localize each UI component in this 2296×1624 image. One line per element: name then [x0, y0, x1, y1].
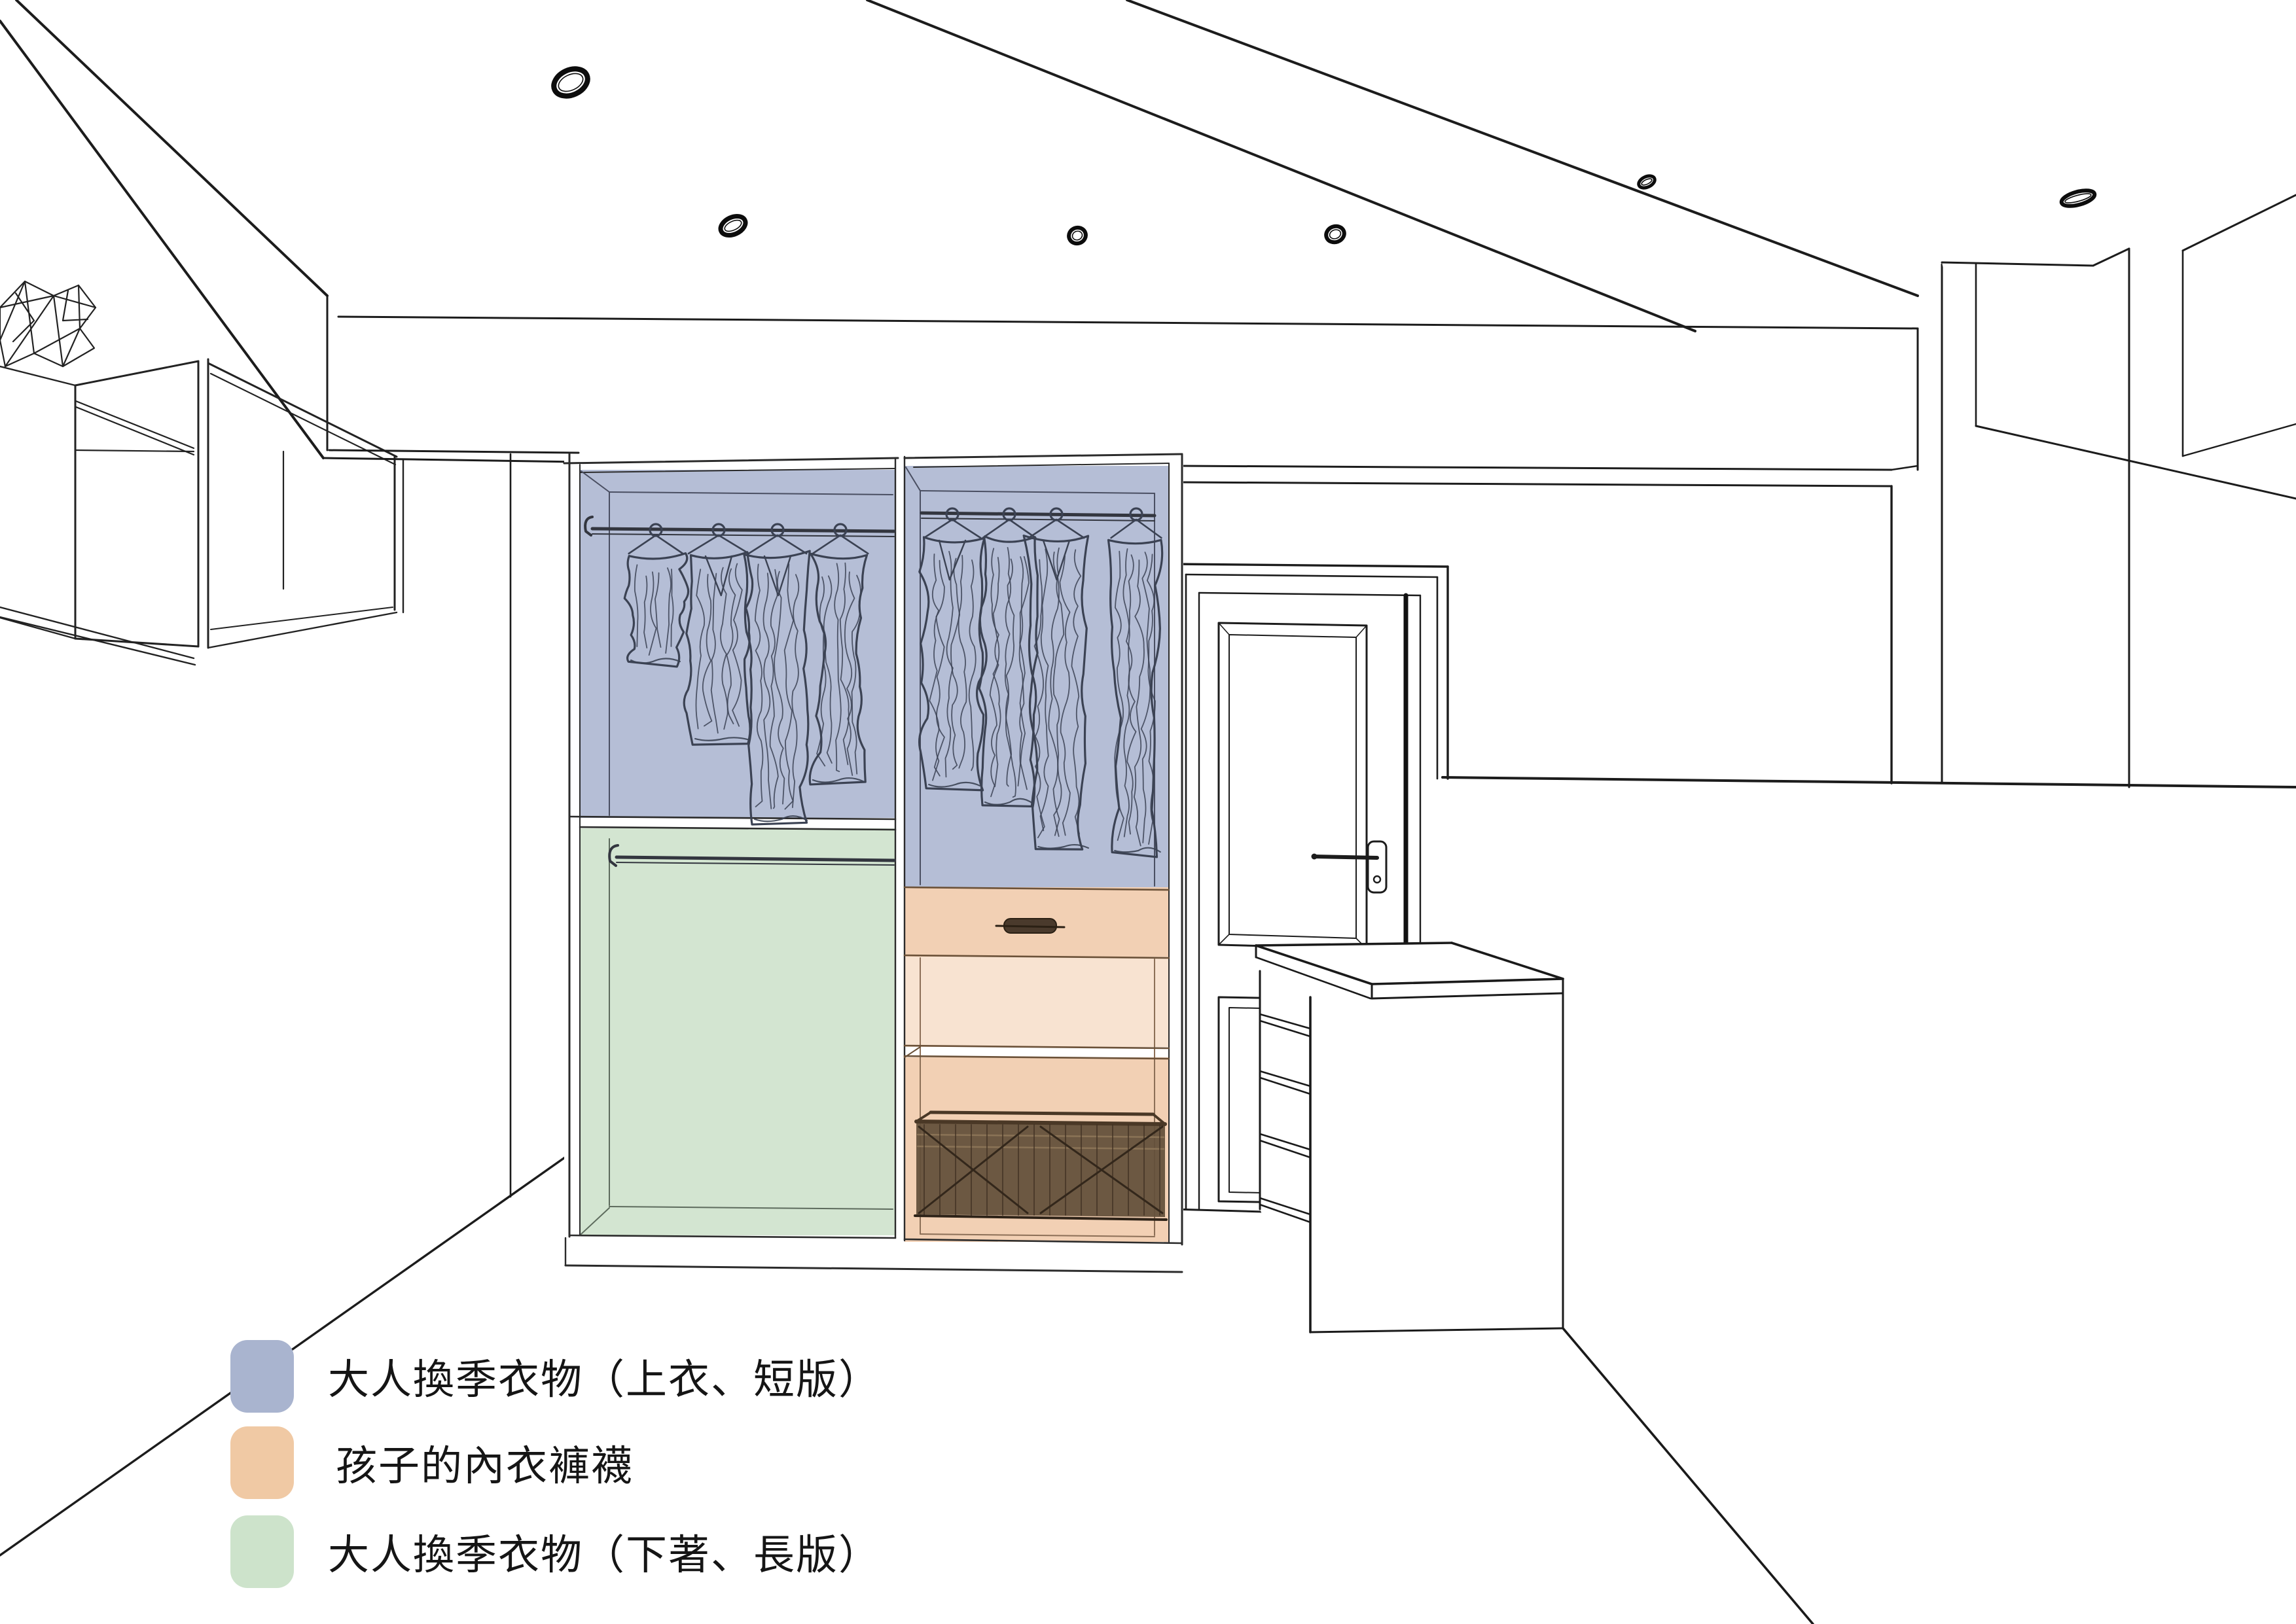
wall-cubby-far — [208, 363, 403, 648]
knee-wall-top — [1443, 777, 2296, 787]
recessed-light — [1067, 225, 1088, 245]
zone-adult-bottoms — [580, 828, 895, 1235]
decor-object — [0, 281, 96, 366]
recessed-light-inner — [1071, 230, 1084, 241]
ceiling-corner-line — [1127, 0, 1918, 296]
room-sketch — [0, 0, 2296, 1624]
recessed-light — [549, 63, 592, 101]
zone-kids-open — [905, 957, 1169, 1047]
recessed-light — [717, 213, 748, 239]
recessed-light — [1637, 173, 1657, 190]
wall-shelf-left — [0, 281, 403, 665]
door-bottom — [1173, 1209, 1263, 1212]
recessed-light — [1324, 224, 1347, 245]
recessed-lights — [549, 63, 2096, 245]
upper-cabinet-right — [1942, 195, 2296, 787]
dresser-island — [1256, 943, 1813, 1624]
recessed-light — [2060, 188, 2096, 209]
canvas: 大人換季衣物（上衣、短版） 孩子的內衣褲襪 大人換季衣物（下著、長版） — [0, 0, 2296, 1624]
floor-line-right — [1563, 1328, 1813, 1624]
zone-adult-tops-left — [580, 470, 895, 818]
wire-basket — [915, 1112, 1166, 1220]
drawer-handle — [996, 919, 1064, 933]
wardrobe — [564, 454, 1183, 1272]
shelf-bottom-edge — [0, 607, 194, 658]
wall-cubby-near — [0, 359, 208, 648]
ceiling-corner-line — [0, 21, 323, 458]
ceiling-lines — [0, 0, 1918, 458]
shelf-bottom-edge — [0, 617, 195, 665]
wall-ceiling-line — [338, 317, 1918, 328]
floor-wall-line-left — [0, 1150, 576, 1555]
